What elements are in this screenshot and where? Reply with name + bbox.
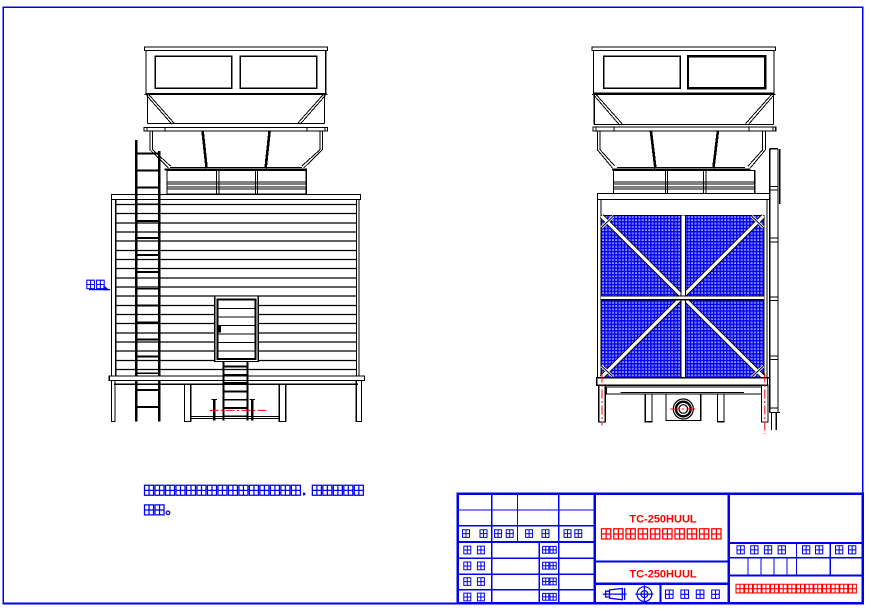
svg-text:TC-250HUUL: TC-250HUUL — [629, 569, 697, 581]
svg-text:TC-250HUUL: TC-250HUUL — [629, 514, 697, 526]
